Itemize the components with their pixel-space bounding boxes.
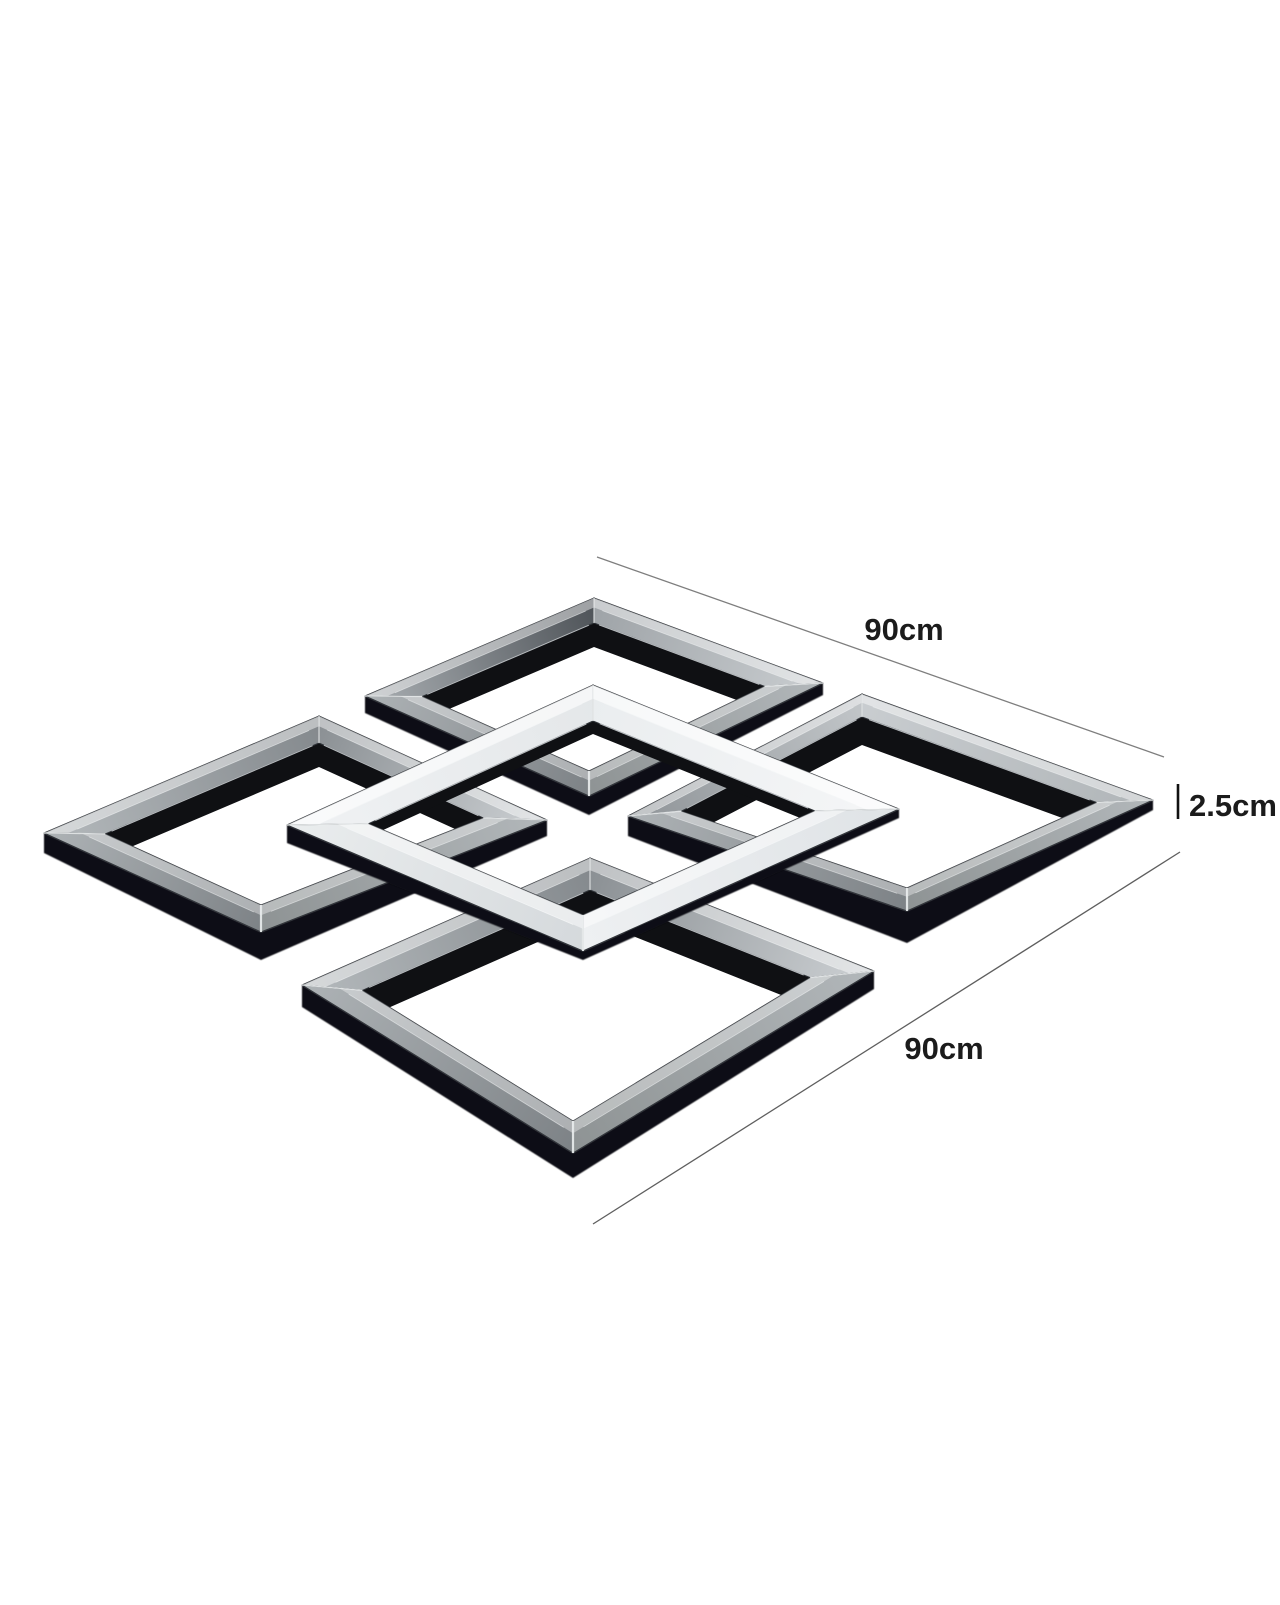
svg-text:90cm: 90cm — [904, 1031, 983, 1066]
svg-text:90cm: 90cm — [864, 612, 943, 647]
svg-text:2.5cm: 2.5cm — [1189, 788, 1277, 823]
